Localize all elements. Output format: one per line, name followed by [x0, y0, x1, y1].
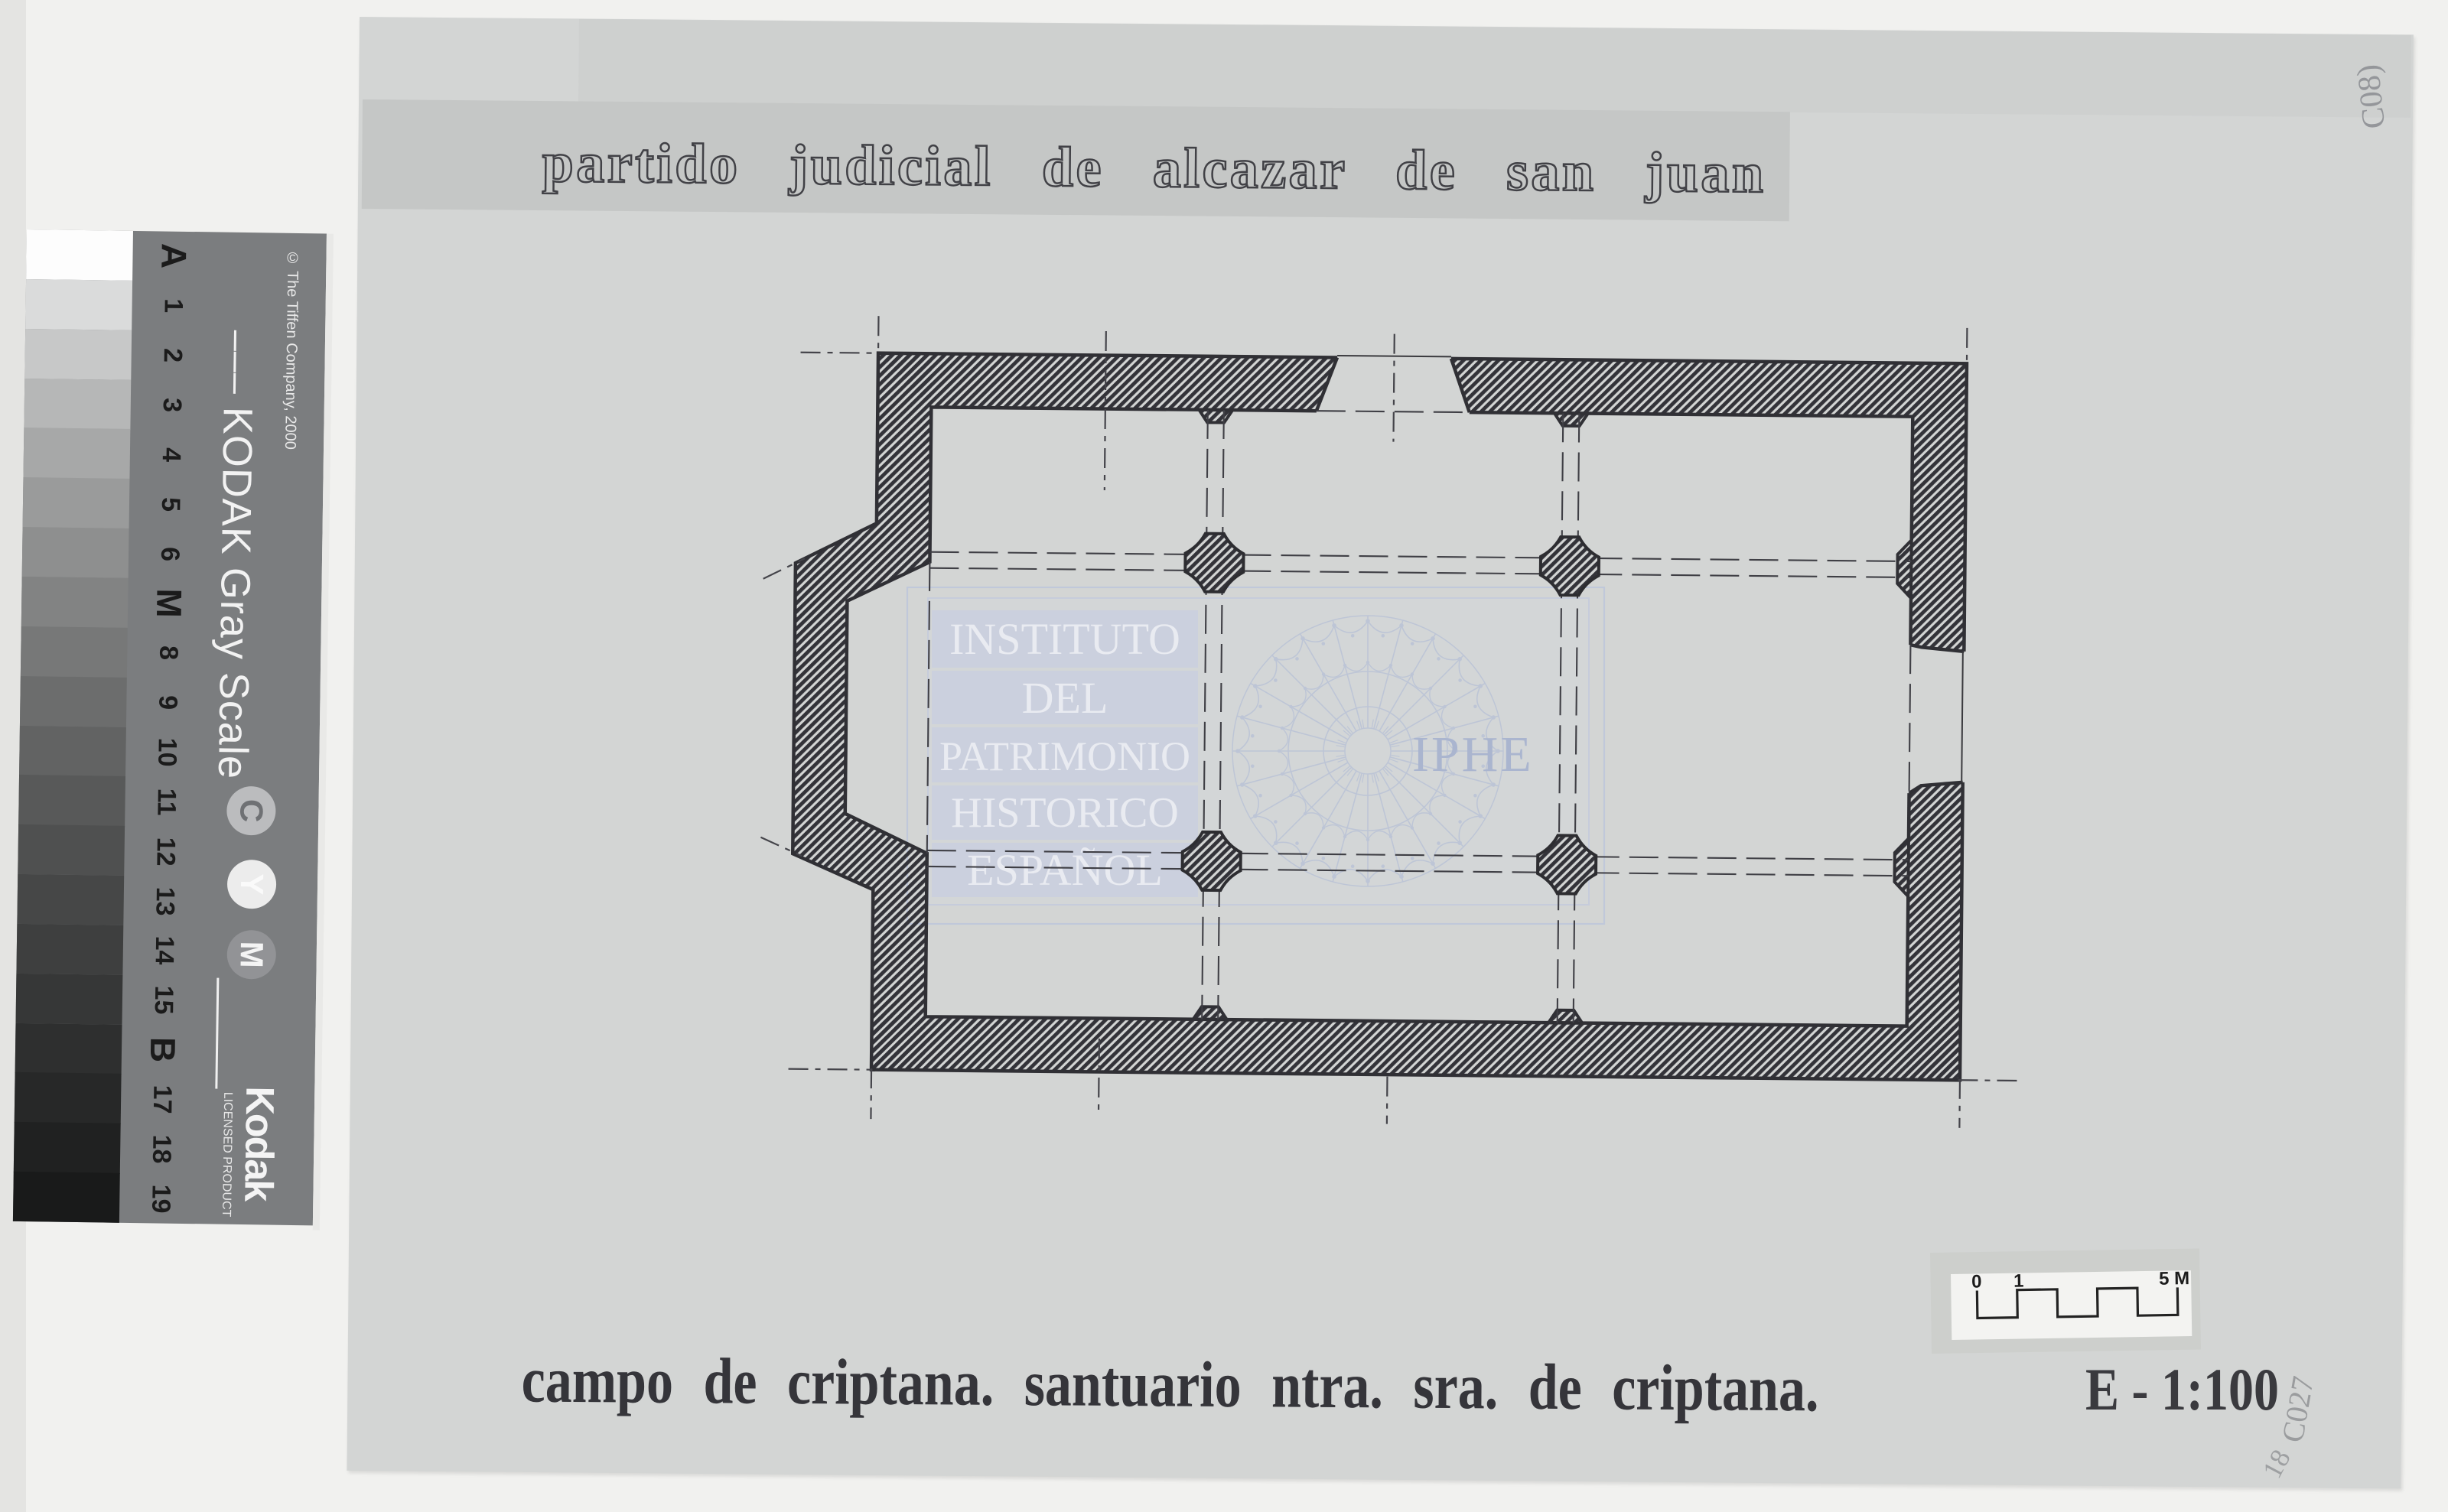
- svg-text:0: 0: [1971, 1271, 1982, 1292]
- svg-text:1: 1: [2013, 1271, 2024, 1292]
- svg-text:5 M: 5 M: [2159, 1270, 2189, 1289]
